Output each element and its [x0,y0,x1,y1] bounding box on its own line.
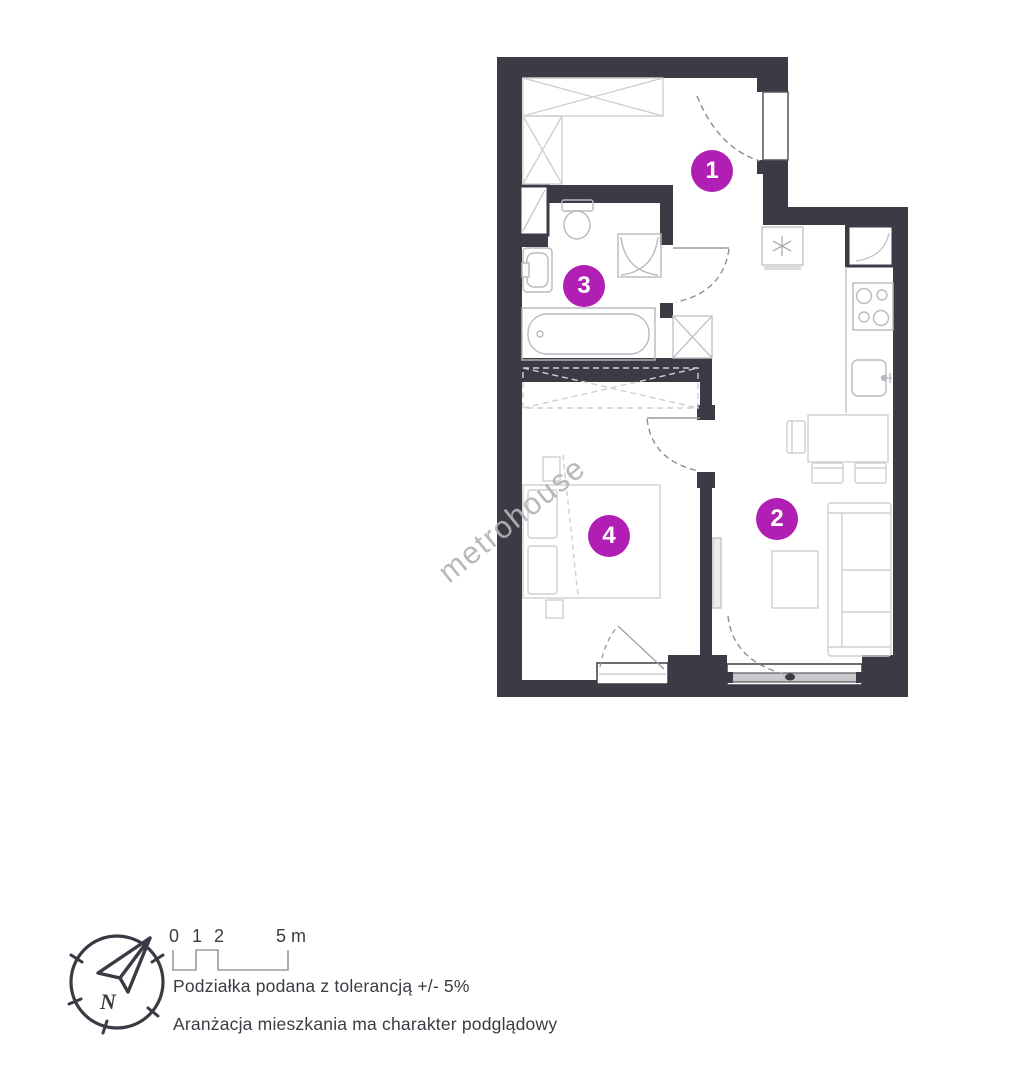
hall-wardrobe-top [523,78,663,116]
shower-unit [618,234,661,277]
north-arrow-icon [98,938,150,992]
pillow [528,490,557,538]
compass-north-label: N [99,989,117,1014]
hall-wardrobe-left [523,116,562,184]
wall-bottom-mid-pier [668,655,727,697]
chair [787,421,805,453]
fridge-shadow [764,265,801,270]
compass-icon: N [69,936,163,1033]
hall-closet [673,316,712,358]
coffee-table [772,551,818,608]
room-label-3: 3 [563,265,605,307]
wall-bath-bottom [522,358,712,382]
room-label-2: 2 [756,498,798,540]
scale-label-2: 2 [214,926,224,947]
dining-table [808,415,888,462]
wall-right [893,225,908,697]
pillow [528,546,557,594]
bathtub [522,308,655,360]
wall-left [497,57,522,697]
sofa [828,503,891,656]
nightstand [546,600,563,618]
nightstand [543,457,560,481]
scale-bar [173,950,288,970]
door-jamb [757,160,770,174]
chair [812,463,843,483]
wall-divider-lower [700,472,712,670]
bathroom-sink [522,248,552,292]
floor-plan-page: N metrohouse 1 2 3 4 0 1 2 5 m Podziałka… [0,0,1029,1080]
wall-top [497,57,788,78]
wall-bath-right-lower [660,303,673,318]
door-handle [785,674,795,681]
wall-bottom-right-pier [862,655,908,697]
scale-label-5m: 5 m [276,926,306,947]
windows [597,663,862,685]
door-jamb [757,78,770,92]
wall-bath-right-upper [660,185,673,245]
room-label-4: 4 [588,515,630,557]
floor-plan-drawing: N [0,0,1029,1080]
toilet [562,200,593,239]
scale-label-1: 1 [192,926,202,947]
tolerance-note: Podziałka podana z tolerancją +/- 5% [173,976,470,997]
fridge [762,227,803,270]
bedroom-door [647,418,700,471]
bathroom-door [673,248,729,302]
chair [855,463,886,483]
stove [853,283,893,330]
arrangement-note: Aranżacja mieszkania ma charakter podglą… [173,1014,557,1035]
balcony-door [727,664,862,685]
kitchen-sink [852,360,892,396]
kitchen-shaft [848,226,893,266]
scale-label-0: 0 [169,926,179,947]
wall-step [763,207,908,225]
bedroom-window [597,663,668,684]
room-label-1: 1 [691,150,733,192]
tv [713,538,721,608]
door-jamb [697,472,715,488]
